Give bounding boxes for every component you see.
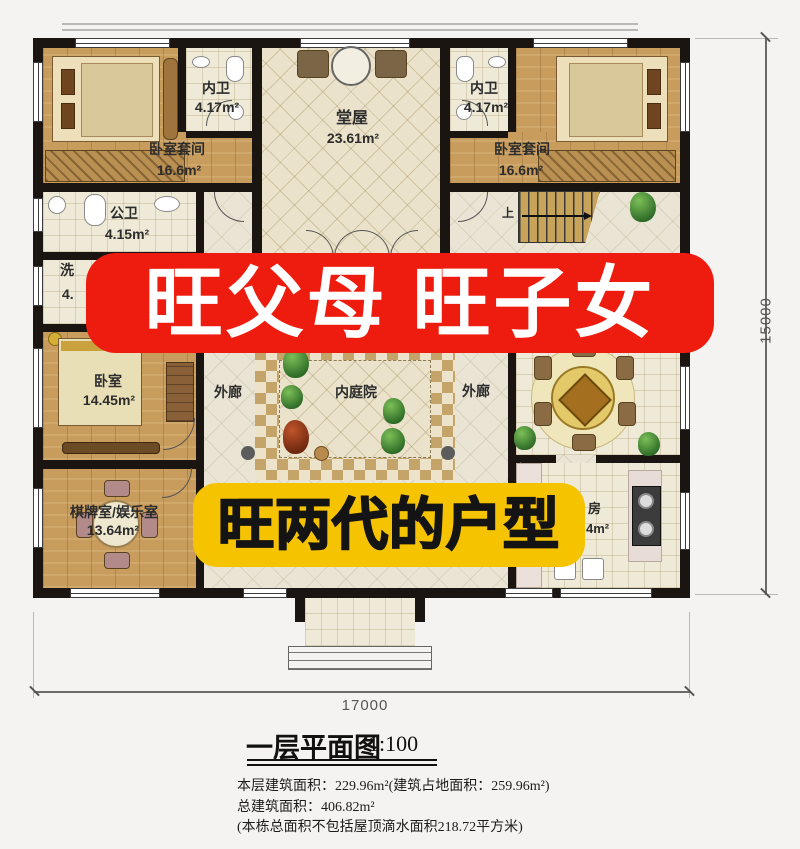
- window: [70, 588, 160, 598]
- floorplan-poster: 卧室套间 16.6m² 内卫 4.17m² 堂屋 23.61m² 内卫 4.17…: [0, 0, 800, 849]
- stove: [632, 486, 661, 546]
- wardrobe: [538, 150, 676, 182]
- wardrobe: [166, 362, 194, 422]
- plant-icon: [281, 385, 303, 409]
- dimension-height-label: 15000: [758, 291, 775, 351]
- wall: [186, 131, 252, 138]
- bench: [62, 442, 160, 454]
- plan-scale: 1:100: [368, 731, 418, 757]
- sink: [48, 196, 66, 214]
- eave-line: [62, 23, 638, 25]
- window: [680, 492, 690, 550]
- window: [560, 588, 652, 598]
- room-label: 洗: [60, 260, 74, 280]
- room-label: 棋牌室/娱乐室: [70, 502, 158, 522]
- plant-icon: [514, 426, 536, 450]
- wall: [440, 38, 450, 268]
- room-area: 23.61m²: [327, 130, 379, 146]
- area-text-line3: (本栋总面积不包括屋顶滴水面积218.72平方米): [237, 816, 523, 836]
- window: [33, 198, 43, 232]
- pot-icon: [314, 446, 329, 461]
- chair: [616, 356, 634, 380]
- room-area: 16.6m²: [157, 162, 201, 178]
- red-slogan-banner: 旺父母 旺子女: [86, 253, 714, 353]
- console-table: [331, 46, 371, 86]
- room-label: 内卫: [202, 78, 230, 98]
- room-area: 4.15m²: [105, 226, 149, 242]
- window: [243, 588, 287, 598]
- sink: [488, 56, 506, 68]
- wall: [295, 588, 305, 622]
- kitchen-sink: [582, 558, 604, 580]
- room-label: 外廊: [462, 381, 490, 401]
- chair: [618, 402, 636, 426]
- porch-floor: [305, 598, 415, 646]
- armchair: [297, 50, 329, 78]
- window: [33, 266, 43, 306]
- bed: [556, 56, 668, 142]
- wall: [440, 183, 690, 192]
- column-dot: [441, 446, 455, 460]
- yellow-slogan-text: 旺两代的户型: [218, 497, 560, 553]
- chair: [104, 480, 130, 497]
- room-area: 4m²: [586, 521, 609, 536]
- extension-line: [33, 612, 34, 698]
- room-area: 16.6m²: [499, 162, 543, 178]
- room-label: 堂屋: [336, 104, 368, 128]
- room-label: 公卫: [110, 203, 138, 223]
- room-label: 卧室套间: [494, 139, 550, 159]
- stair-arrow: [522, 215, 584, 217]
- area-text-line2: 总建筑面积：406.82m²: [237, 796, 375, 816]
- sink: [192, 56, 210, 68]
- window: [505, 588, 553, 598]
- entry-steps: [288, 646, 432, 670]
- plant-icon: [638, 432, 660, 456]
- wall: [252, 38, 262, 268]
- window: [680, 366, 690, 430]
- column-dot: [241, 446, 255, 460]
- room-label: 内卫: [470, 78, 498, 98]
- yellow-slogan-banner: 旺两代的户型: [193, 483, 585, 567]
- wall: [33, 183, 262, 192]
- bed: [52, 56, 160, 142]
- shrub-icon: [283, 420, 309, 454]
- plant-icon: [383, 398, 405, 424]
- wall: [596, 455, 690, 463]
- wall: [415, 588, 425, 622]
- wall: [508, 48, 516, 132]
- cabinet: [163, 58, 178, 140]
- room-area: 4.17m²: [464, 99, 508, 115]
- room-area: 4.: [62, 286, 74, 302]
- room-label: 外廊: [214, 382, 242, 402]
- chair: [534, 356, 552, 380]
- title-underline: [247, 759, 437, 766]
- window: [75, 38, 170, 48]
- extension-line: [689, 612, 690, 698]
- eave-line: [62, 29, 638, 31]
- window: [33, 488, 43, 548]
- stair-up-label: 上: [502, 204, 514, 221]
- wall: [178, 48, 186, 132]
- area-text-line1: 本层建筑面积：229.96m²(建筑占地面积：259.96m²): [237, 775, 550, 795]
- stair-arrow-head: [584, 212, 592, 220]
- dimension-line-bottom: [34, 691, 690, 693]
- chair: [572, 434, 596, 451]
- room-label: 卧室套间: [149, 139, 205, 159]
- plant-icon: [630, 192, 656, 222]
- wall: [450, 131, 508, 138]
- room-area: 4.17m²: [195, 99, 239, 115]
- dimension-width-label: 17000: [330, 697, 400, 714]
- plant-icon: [381, 428, 405, 454]
- window: [33, 348, 43, 428]
- chair: [534, 402, 552, 426]
- room-area: 13.64m²: [87, 522, 139, 538]
- room-label: 卧室: [94, 371, 122, 391]
- floor-plan: 卧室套间 16.6m² 内卫 4.17m² 堂屋 23.61m² 内卫 4.17…: [0, 0, 800, 849]
- chair: [104, 552, 130, 569]
- room-label: 房: [588, 498, 601, 517]
- room-area: 14.45m²: [83, 392, 135, 408]
- window: [533, 38, 628, 48]
- window: [33, 62, 43, 122]
- armchair: [375, 50, 407, 78]
- bathtub: [84, 194, 106, 226]
- red-slogan-text: 旺父母 旺子女: [145, 264, 656, 342]
- window: [680, 62, 690, 132]
- shower-basin: [154, 196, 180, 212]
- room-label: 内庭院: [335, 382, 377, 402]
